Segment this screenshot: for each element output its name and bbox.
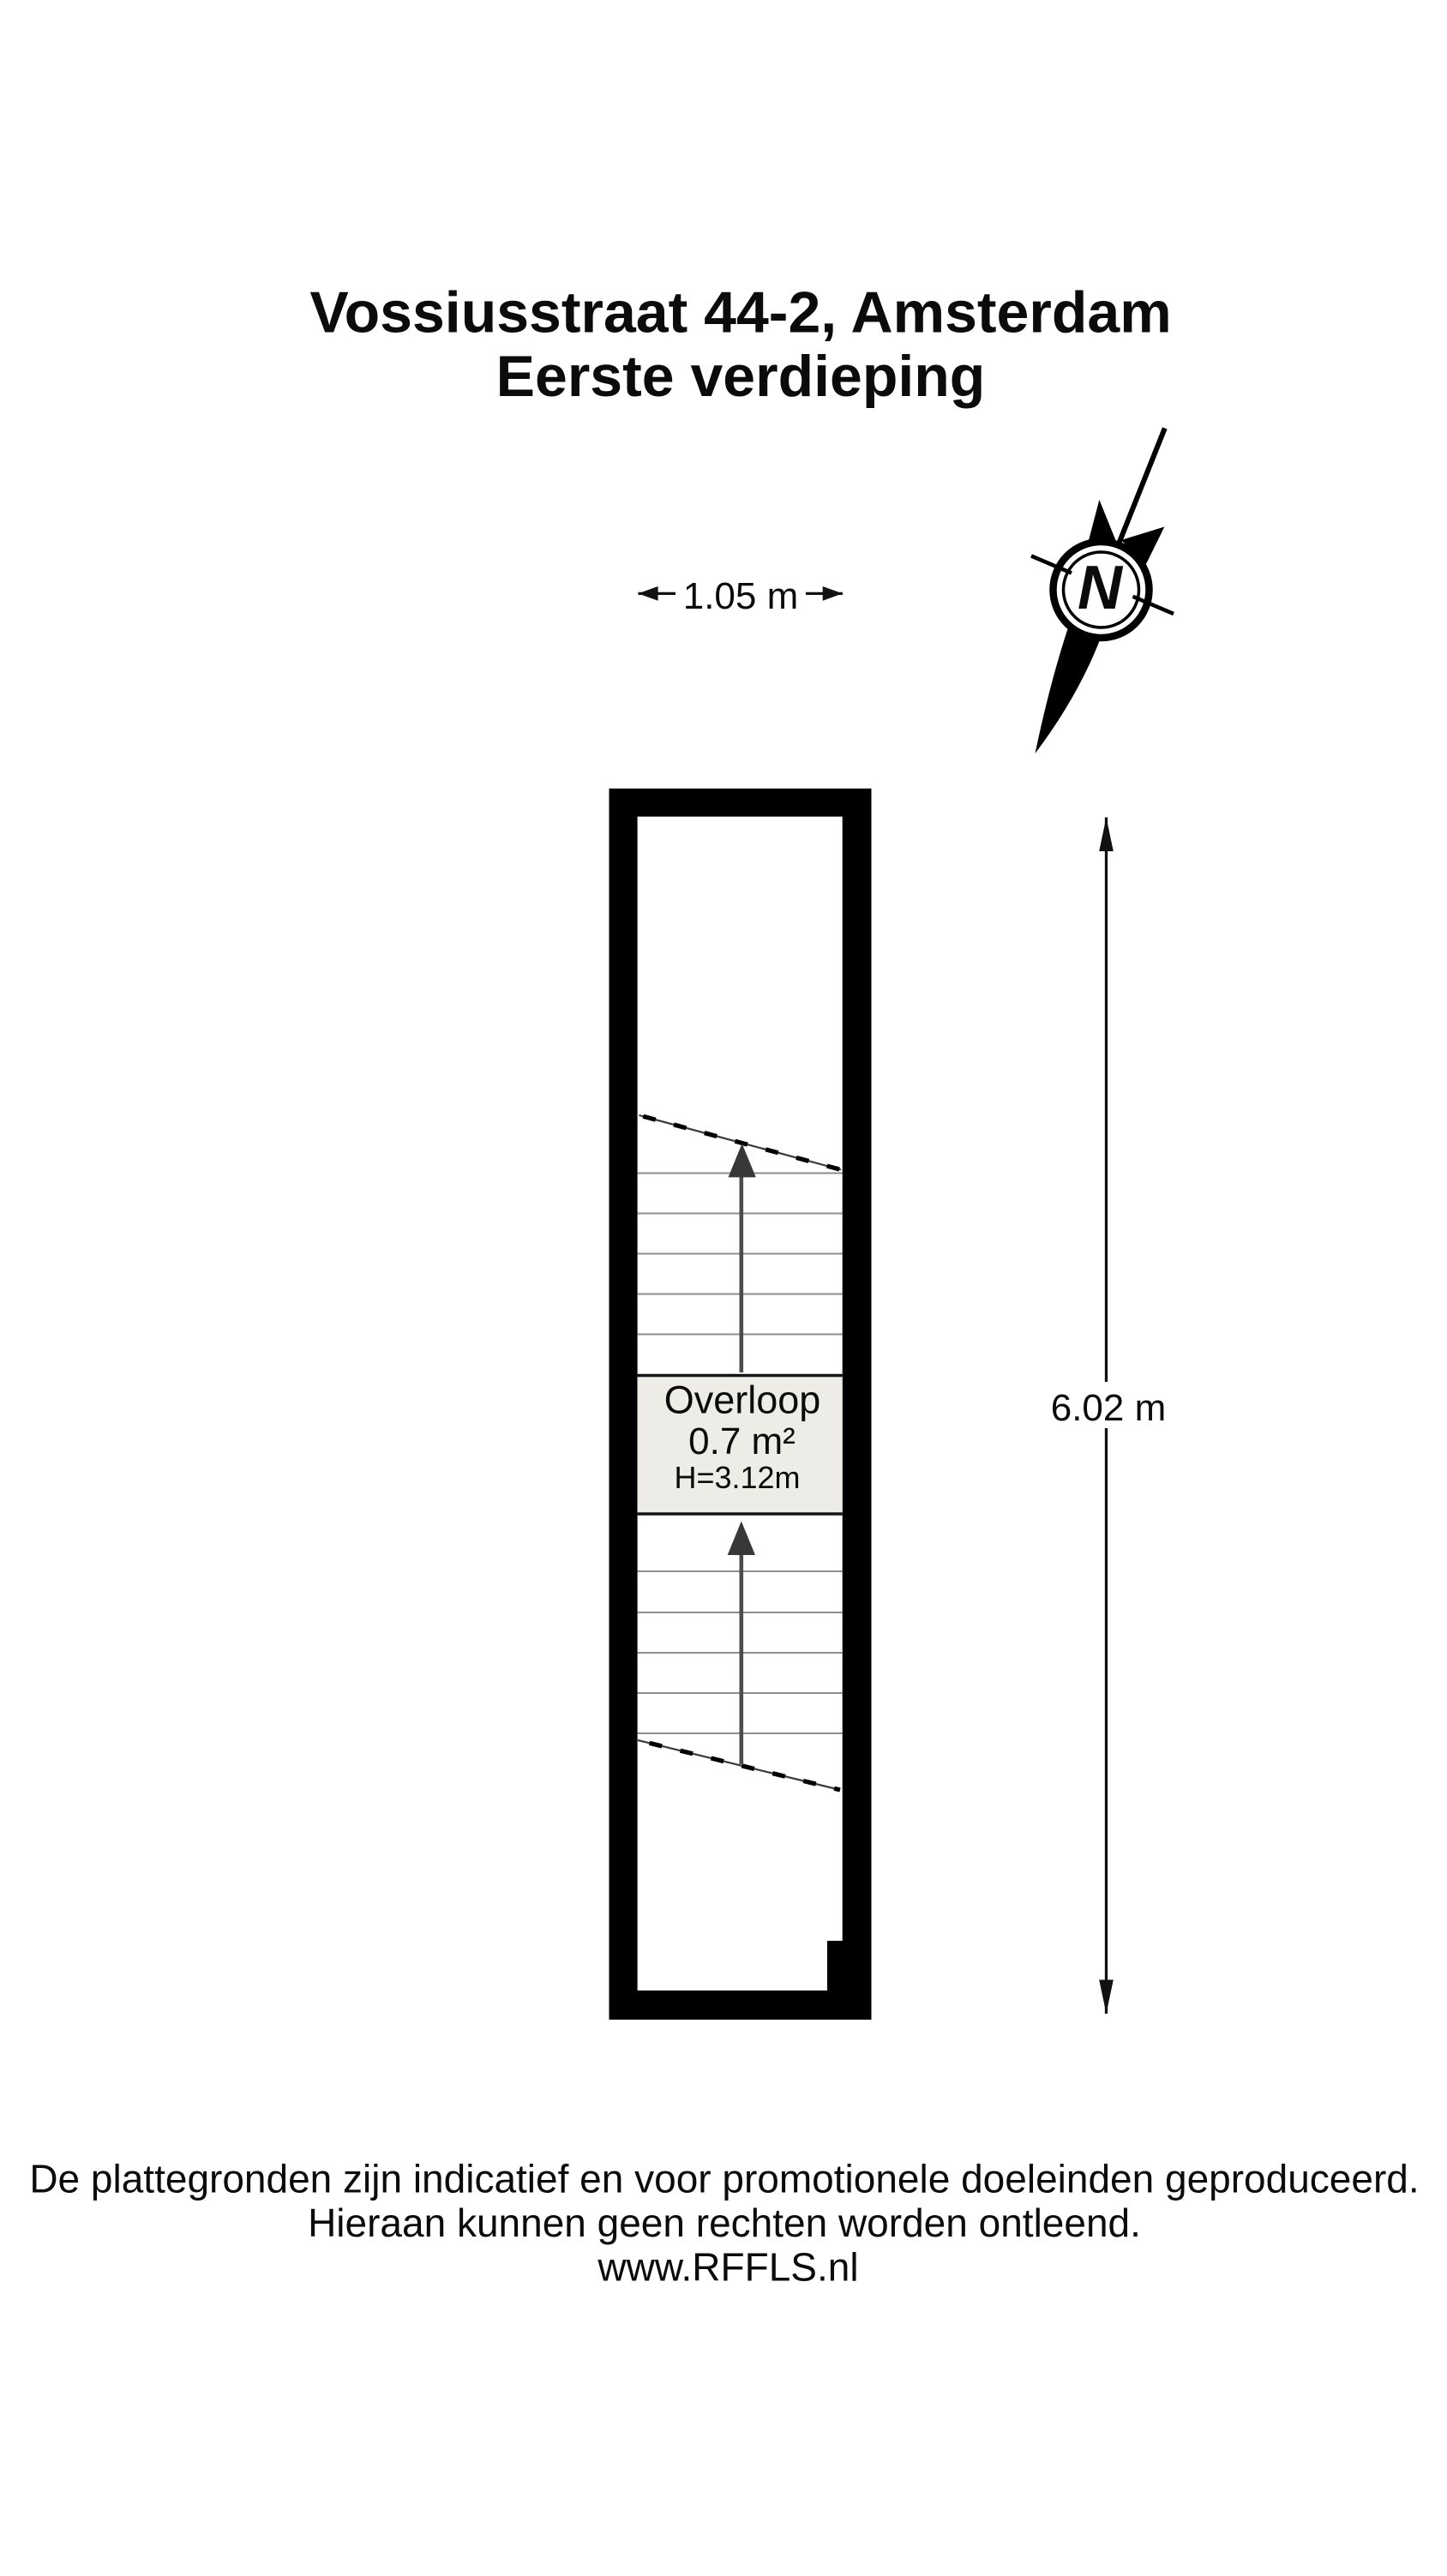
svg-text:6.02 m: 6.02 m xyxy=(1051,1387,1167,1429)
svg-text:N: N xyxy=(1078,554,1124,622)
svg-text:0.7 m²: 0.7 m² xyxy=(688,1420,796,1462)
svg-text:Eerste verdieping: Eerste verdieping xyxy=(496,344,986,409)
svg-text:Overloop: Overloop xyxy=(664,1378,821,1422)
svg-text:Vossiusstraat 44-2, Amsterdam: Vossiusstraat 44-2, Amsterdam xyxy=(309,280,1171,345)
svg-text:De plattegronden zijn indicati: De plattegronden zijn indicatief en voor… xyxy=(29,2157,1419,2201)
svg-text:1.05 m: 1.05 m xyxy=(683,575,799,617)
svg-text:www.RFFLS.nl: www.RFFLS.nl xyxy=(597,2245,858,2290)
svg-text:Hieraan kunnen geen rechten wo: Hieraan kunnen geen rechten worden ontle… xyxy=(308,2201,1141,2245)
svg-text:H=3.12m: H=3.12m xyxy=(674,1460,800,1495)
